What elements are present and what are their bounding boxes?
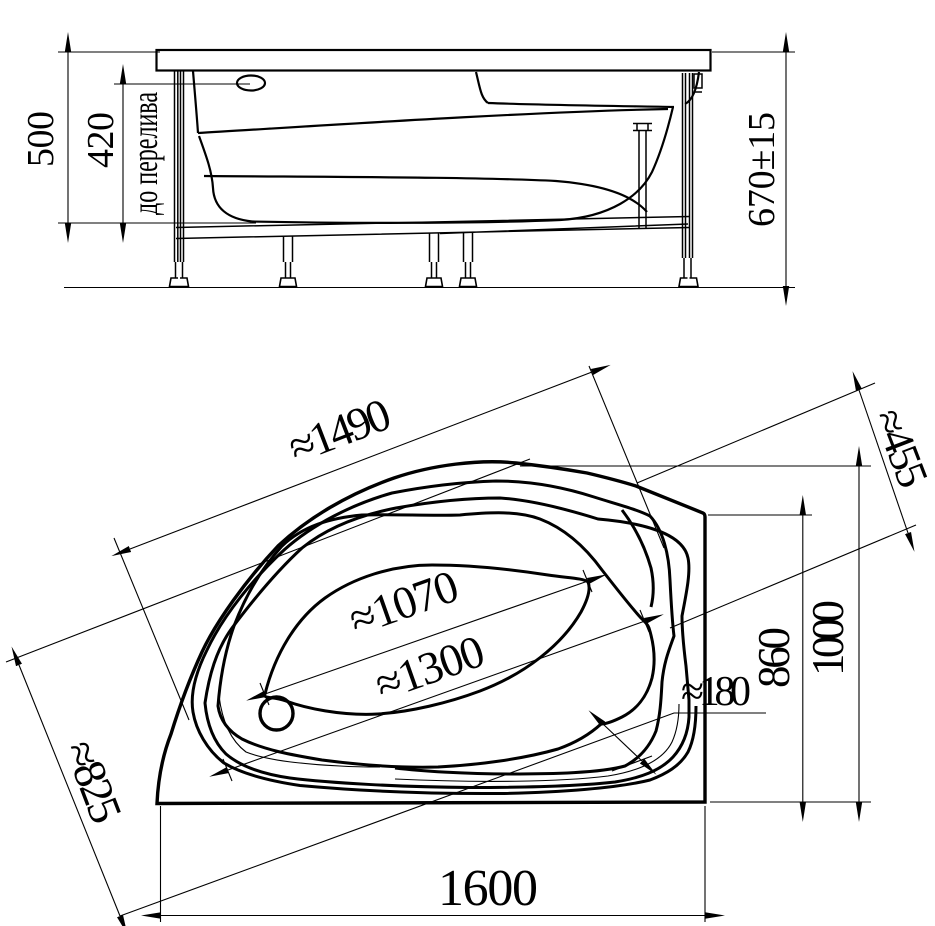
svg-text:до перелива: до перелива (125, 92, 165, 215)
svg-text:≈180: ≈180 (681, 669, 751, 715)
svg-text:1600: 1600 (438, 860, 538, 917)
svg-text:500: 500 (20, 111, 62, 167)
svg-text:1000: 1000 (803, 600, 853, 676)
svg-text:860: 860 (749, 627, 799, 688)
svg-text:670±15: 670±15 (741, 112, 783, 227)
svg-text:420: 420 (80, 112, 122, 168)
